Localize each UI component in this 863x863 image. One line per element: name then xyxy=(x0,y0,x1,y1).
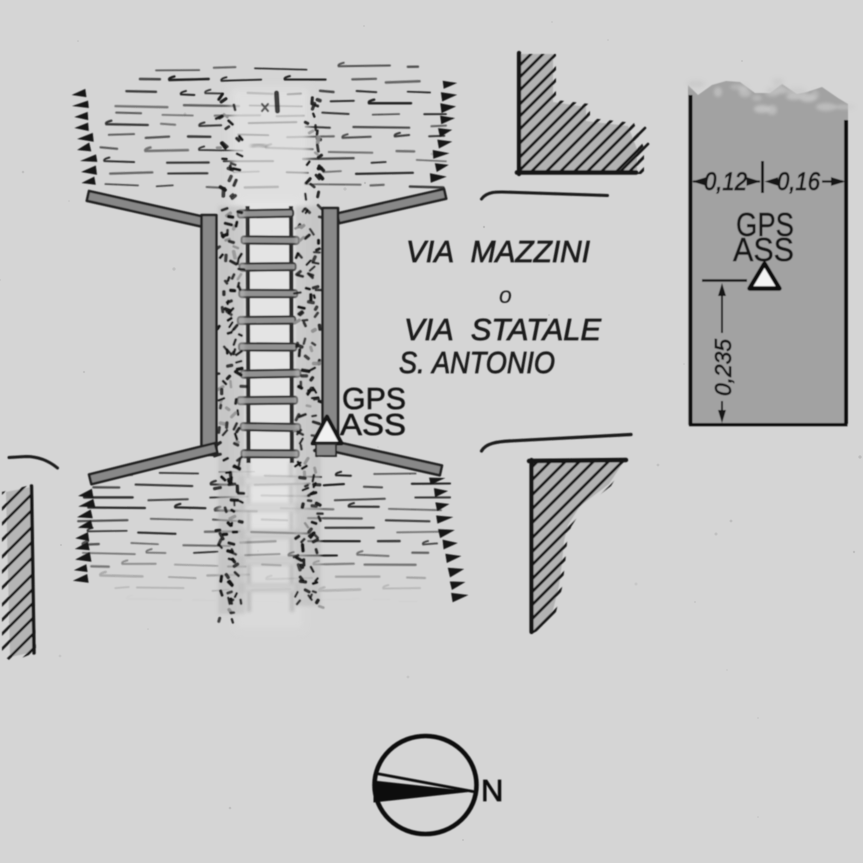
svg-text:VIA MAZZINI: VIA MAZZINI xyxy=(406,234,590,269)
svg-text:o: o xyxy=(499,282,512,308)
svg-text:VIA STATALE: VIA STATALE xyxy=(404,312,601,347)
svg-text:S. ANTONIO: S. ANTONIO xyxy=(399,345,555,380)
svg-text:0,16: 0,16 xyxy=(777,168,820,196)
svg-text:N: N xyxy=(481,773,503,808)
svg-text:0,235: 0,235 xyxy=(710,338,736,396)
svg-text:0,12: 0,12 xyxy=(704,168,747,196)
svg-text:ASS: ASS xyxy=(340,407,406,442)
